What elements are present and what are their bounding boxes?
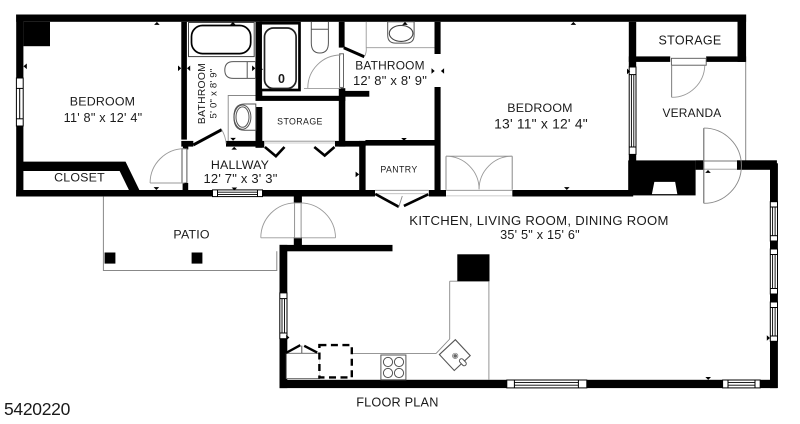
svg-text:5' 0" x 8' 9": 5' 0" x 8' 9"	[209, 69, 220, 119]
svg-text:12' 8" x 8' 9": 12' 8" x 8' 9"	[353, 73, 427, 88]
svg-text:12' 7" x 3' 3": 12' 7" x 3' 3"	[203, 171, 277, 186]
svg-text:BEDROOM: BEDROOM	[70, 95, 135, 109]
svg-text:35' 5" x 15' 6": 35' 5" x 15' 6"	[500, 228, 580, 242]
svg-text:5420220: 5420220	[4, 399, 71, 419]
svg-text:BATHROOM: BATHROOM	[197, 63, 208, 124]
svg-text:13' 11" x 12' 4": 13' 11" x 12' 4"	[494, 115, 588, 131]
svg-text:STORAGE: STORAGE	[277, 117, 323, 127]
svg-text:BEDROOM: BEDROOM	[507, 101, 572, 115]
svg-text:VERANDA: VERANDA	[663, 106, 722, 120]
svg-text:HALLWAY: HALLWAY	[211, 158, 269, 172]
svg-text:11' 8" x 12' 4": 11' 8" x 12' 4"	[64, 111, 143, 125]
svg-text:PATIO: PATIO	[173, 228, 209, 242]
svg-text:FLOOR PLAN: FLOOR PLAN	[356, 395, 438, 409]
svg-text:CLOSET: CLOSET	[54, 171, 105, 185]
svg-text:KITCHEN, LIVING ROOM, DINING R: KITCHEN, LIVING ROOM, DINING ROOM	[409, 213, 668, 228]
svg-text:PANTRY: PANTRY	[380, 165, 417, 175]
svg-text:STORAGE: STORAGE	[659, 34, 722, 48]
svg-text:BATHROOM: BATHROOM	[355, 59, 424, 73]
svg-text:0: 0	[278, 72, 285, 86]
